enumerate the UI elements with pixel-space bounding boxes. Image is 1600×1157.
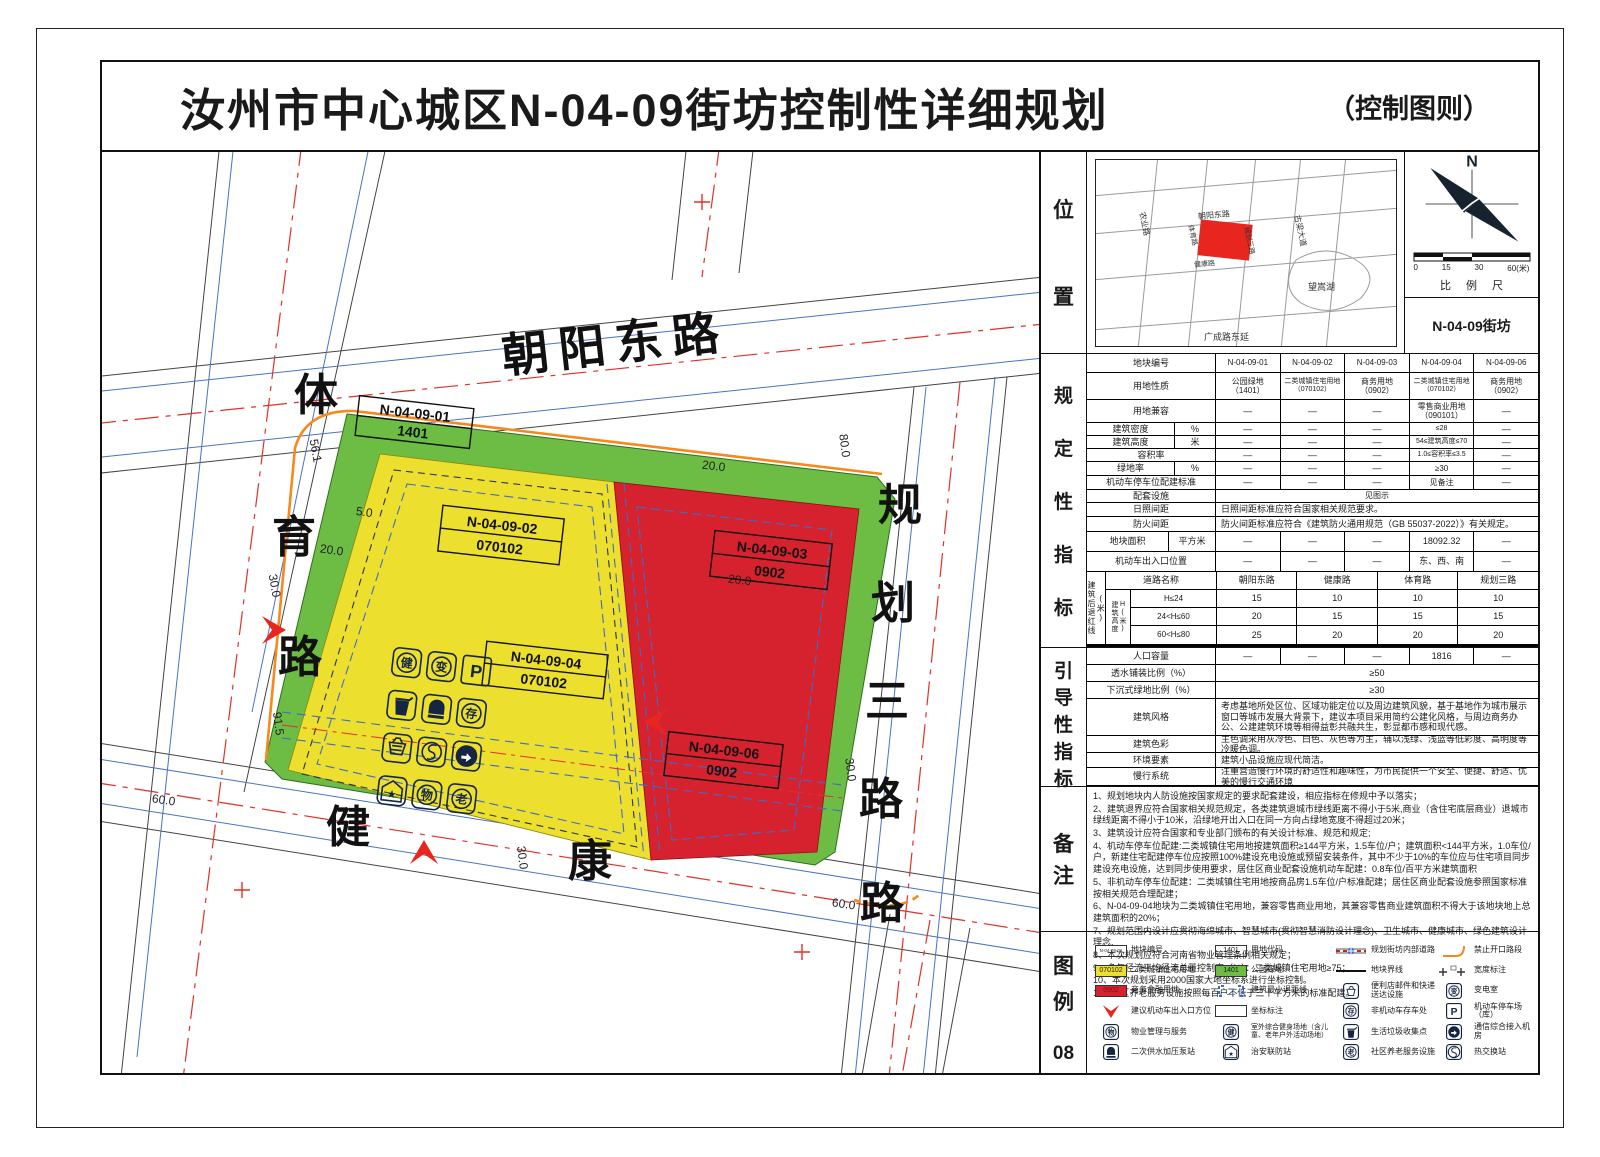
setback-height-label: 建筑高度H(米): [1106, 590, 1130, 644]
green-cell: —: [1216, 462, 1280, 475]
road-label-guihua-1: 规: [878, 481, 922, 530]
svg-text:老: 老: [455, 791, 469, 807]
legend-item-park: 1401 公园绿地: [1215, 962, 1333, 979]
row-label: 机动车停车位配建标准: [1087, 476, 1215, 489]
dim-label: 30.0: [842, 757, 859, 782]
note-item: 5、非机动车停车位配建：二类城镇住宅用地按商品房1.5车位/户标准配建；居住区商…: [1093, 877, 1532, 900]
note-item: 3、建筑设计应符合国家和专业部门颁布的有关设计标准、规范和规定;: [1093, 828, 1532, 840]
title-bar: 汝州市中心城区N-04-09街坊控制性详细规划 （控制图则）: [102, 62, 1538, 152]
green-cell: ≥30: [1410, 462, 1474, 475]
scale-label: 比 例 尺: [1440, 277, 1509, 293]
setback-road-header: 道路名称: [1106, 572, 1216, 589]
dim-label: 91.5: [270, 711, 287, 736]
plot-no-cell: N-04-09-02: [1281, 354, 1345, 372]
row-label: 用地性质: [1087, 373, 1215, 399]
population-cell: —: [1474, 648, 1538, 664]
row-label: 容积率: [1087, 449, 1215, 461]
green-cell: —: [1345, 462, 1409, 475]
parking-cell: 见备注: [1410, 476, 1474, 489]
plot-no-cell: N-04-09-01: [1216, 354, 1280, 372]
road-label-tiyu-2: 育: [272, 513, 316, 562]
section-notes-label: 备 注: [1041, 787, 1087, 931]
population-cell: —: [1216, 648, 1280, 664]
legend-item-land-code: 1401 用地代码: [1215, 942, 1333, 959]
land-use-cell: 公园绿地 （1401）: [1216, 373, 1280, 399]
dim-label: 80.0: [836, 433, 853, 458]
dim-label: 20.0: [701, 458, 726, 475]
section-legend: 图 例 08 N-04-09-01 地块编号 1401 用地代码: [1041, 932, 1538, 1073]
land-use-cell: 二类城镇住宅用地 （070102）: [1410, 373, 1474, 399]
area-cell: —: [1216, 532, 1280, 551]
plot-no-cell: N-04-09-03: [1345, 354, 1409, 372]
convenience-icon: [1335, 983, 1367, 999]
setback-road: 体育路: [1378, 572, 1458, 589]
svg-text:★: ★: [1228, 1051, 1234, 1058]
population-cell: —: [1345, 648, 1409, 664]
svg-text:N: N: [1466, 153, 1478, 170]
svg-text:变: 变: [1451, 986, 1458, 995]
setback-outer-label: 建筑后退红线(米): [1087, 572, 1105, 644]
no-open-icon: [1438, 943, 1470, 959]
setback-value: 20: [1378, 626, 1458, 644]
row-label: 环境要素: [1087, 753, 1215, 767]
far-cell: 1.0≤容积率≤3.5: [1410, 449, 1474, 461]
parking-cell: —: [1345, 476, 1409, 489]
row-label: 透水铺装比例（%）: [1087, 665, 1215, 681]
height-cell: —: [1216, 436, 1280, 448]
svg-text:二: 二: [1226, 987, 1235, 997]
parking-cell: —: [1474, 476, 1538, 489]
road-label-jiankang-2: 康: [568, 837, 612, 886]
internal-road-icon: [1335, 946, 1367, 956]
far-cell: —: [1345, 449, 1409, 461]
svg-text:变: 变: [435, 659, 449, 675]
page-title: 汝州市中心城区N-04-09街坊控制性详细规划: [180, 74, 1109, 139]
legend-item-coord: 坐标标注: [1215, 1003, 1333, 1021]
slow-cell: 注重营造慢行环境的舒适性和趣味性，为市民提供一个安全、便捷、舒适、优美的慢行交通…: [1216, 768, 1538, 785]
dim-label: 56.1: [307, 438, 325, 464]
svg-text:物: 物: [1108, 1028, 1115, 1037]
compat-cell: —: [1216, 400, 1280, 422]
transformer-icon: 变: [1438, 983, 1470, 999]
height-cell: —: [1281, 436, 1345, 448]
land-use-cell: 二类城镇住宅用地 （070102）: [1281, 373, 1345, 399]
width-mark-icon: [1438, 964, 1470, 978]
park-swatch: 1401: [1215, 965, 1247, 977]
block-name: N-04-09街坊: [1405, 297, 1538, 353]
entrance-arrow-south: [410, 840, 438, 864]
setback-value: 25: [1217, 626, 1296, 644]
plan-sheet: 汝州市中心城区N-04-09街坊控制性详细规划 （控制图则）: [100, 60, 1540, 1075]
plot-no-cell: N-04-09-04: [1410, 354, 1474, 372]
scale-ticks: 0 15 30 60(米): [1414, 263, 1530, 274]
setback-road: 朝阳东路: [1217, 572, 1296, 589]
section-notes: 备 注 1、规划地块内人防设施按国家规定的要求配套建设，相应指标在修规中予以落实…: [1041, 787, 1538, 932]
green-cell: —: [1281, 462, 1345, 475]
legend-item-business: 0902 商务金融用地: [1095, 982, 1213, 1000]
minimap-label-guliang: 古梁大道: [1292, 213, 1308, 246]
legend-item-security: ★ 治安联防站: [1215, 1044, 1333, 1061]
road-label-tiyu-1: 体: [294, 371, 338, 420]
row-label: 防火间距: [1087, 517, 1215, 531]
environment-cell: 建筑小品设施应现代简洁。: [1216, 753, 1538, 767]
road-label-guihua-4: 路: [859, 775, 904, 824]
minimap-label-nongye: 农业路: [1137, 211, 1152, 237]
setback-line-icon: 二: [1215, 984, 1247, 998]
land-code-swatch: 1401: [1215, 945, 1247, 957]
land-use-cell: 商务用地 （0902）: [1345, 373, 1409, 399]
plan-map-canvas: 朝阳东路 体 育 路 健 康 路 规 划 三 路 80.0 20.0 20.0: [102, 152, 1041, 1073]
scale-bar: [1413, 252, 1531, 262]
heat-exchange-icon: [1438, 1044, 1470, 1060]
plot-no-swatch: N-04-09-01: [1095, 945, 1127, 957]
row-label: 绿地率%: [1087, 462, 1215, 475]
far-cell: —: [1474, 449, 1538, 461]
legend-item-residential: 070102 二类城镇住宅用地: [1095, 962, 1213, 979]
road-label-guihua-3: 三: [865, 677, 909, 726]
dim-label: 60.0: [831, 895, 856, 912]
section-regulatory: 规 定 性 指 标 地块编号 N-04-09-01 N-04-09-02 N-0…: [1041, 354, 1538, 648]
setback-value: 15: [1378, 608, 1458, 625]
business-swatch: 0902: [1095, 985, 1127, 997]
section-location: 位 置 农业路: [1041, 152, 1538, 354]
note-item: 1、规划地块内人防设施按国家规定的要求配套建设，相应指标在修规中予以落实；: [1093, 791, 1532, 803]
compat-cell: 零售商业用地 （090101）: [1410, 400, 1474, 422]
svg-text:★: ★: [386, 788, 397, 801]
area-cell: —: [1281, 532, 1345, 551]
setback-value: 20: [1217, 608, 1296, 625]
minimap-site: [1197, 219, 1252, 260]
minimap-label-lake: 望嵩湖: [1308, 281, 1335, 292]
legend-item-bike: 存 非机动车存车处: [1335, 1003, 1436, 1021]
minimap-canvas: 农业路 朝阳东路 体育路 健康路 规划三路 古梁大道 望嵩湖 广成路东延: [1095, 159, 1397, 347]
section-legend-label: 图 例 08: [1041, 932, 1087, 1073]
svg-text:健: 健: [1228, 1028, 1235, 1037]
height-cell: 54≤建筑高度≤70: [1410, 436, 1474, 448]
residential-swatch: 070102: [1095, 965, 1127, 977]
row-label: 地块面积平方米: [1087, 532, 1215, 551]
legend-item-transformer: 变 变电室: [1438, 982, 1534, 1000]
style-cell: 考虑基地所处区位、区域功能定位以及周边建筑风貌，基于基地作为城市展示窗口等城市发…: [1216, 699, 1538, 735]
parking-cell: —: [1281, 476, 1345, 489]
height-cell: —: [1345, 436, 1409, 448]
entrance-cell: —: [1474, 552, 1538, 571]
parking-icon: P: [1438, 1003, 1470, 1019]
parking-cell: —: [1216, 476, 1280, 489]
setback-value: 20: [1458, 626, 1538, 644]
note-item: 2、建筑退界应符合国家相关规范规定，各类建筑退城市绿线距离不得小于5米,商业（含…: [1093, 804, 1532, 827]
legend-item-internal-road: 规划街坊内部道路: [1335, 942, 1436, 959]
legend-item-plot-no: N-04-09-01 地块编号: [1095, 942, 1213, 959]
entrance-cell: —: [1216, 552, 1280, 571]
setback-value: 10: [1458, 590, 1538, 607]
legend-grid: N-04-09-01 地块编号 1401 用地代码 规划街坊内部道路: [1087, 932, 1538, 1067]
garbage-icon: [1335, 1024, 1367, 1040]
section-guidance: 引 导 性 指 标 人口容量 — — — 1816 — 透水铺装比例（%）: [1041, 648, 1538, 787]
setback-value: 15: [1217, 590, 1296, 607]
road-label-guihua-2: 划: [871, 579, 915, 628]
bike-parking-icon: 存: [1335, 1003, 1367, 1019]
row-label: 人口容量: [1087, 648, 1215, 664]
density-cell: ≤28: [1410, 423, 1474, 435]
setback-range: 60<H≤80: [1131, 626, 1216, 644]
area-cell: —: [1474, 532, 1538, 551]
road-label-chaoyang: 朝阳东路: [499, 305, 731, 383]
svg-text:老: 老: [1347, 1048, 1355, 1057]
minimap-label-guangcheng: 广成路东延: [1204, 331, 1249, 342]
legend-item-garbage: 生活垃圾收集点: [1335, 1023, 1436, 1041]
location-minimap: 农业路 朝阳东路 体育路 健康路 规划三路 古梁大道 望嵩湖 广成路东延: [1087, 152, 1405, 353]
row-label: 建筑密度%: [1087, 423, 1215, 435]
population-cell: —: [1281, 648, 1345, 664]
entrance-cell: —: [1281, 552, 1345, 571]
compat-cell: —: [1281, 400, 1345, 422]
row-label: 配套设施: [1087, 490, 1215, 502]
facilities-cell: 见图示: [1216, 490, 1538, 502]
legend-item-boundary: 地块界线: [1335, 962, 1436, 979]
row-label: 用地兼容: [1087, 400, 1215, 422]
legend-item-convenience: 便利店邮件和快递送达设施: [1335, 982, 1436, 1000]
setback-range: H≤24: [1131, 590, 1216, 607]
setback-table: 建筑后退红线(米) 道路名称 朝阳东路 健康路 体育路 规划三路 建筑高度H(米…: [1087, 572, 1538, 644]
setback-road: 健康路: [1297, 572, 1377, 589]
row-label: 日照间距: [1087, 503, 1215, 516]
sunken-cell: ≥30: [1216, 682, 1538, 698]
legend-item-fitness: 健 室外综合健身场地（含儿童、老年户外活动场地）: [1215, 1023, 1333, 1041]
road-label-jiankang-1: 健: [326, 803, 370, 852]
row-label: 下沉式绿地比例（%）: [1087, 682, 1215, 698]
area-cell: —: [1345, 532, 1409, 551]
legend-item-elderly: 老 社区养老服务设施: [1335, 1044, 1436, 1061]
legend-item-telecom: 通信综合接入机房: [1438, 1023, 1534, 1041]
note-item: 6、N-04-09-04地块为二类城镇住宅用地，兼容零售商业用地，其兼容零售商业…: [1093, 901, 1532, 924]
minimap-label-tiyu: 体育路: [1186, 224, 1199, 246]
plot-no-cell: N-04-09-06: [1474, 354, 1538, 372]
density-cell: —: [1474, 423, 1538, 435]
elderly-icon: 老: [1335, 1044, 1367, 1060]
note-item: 4、机动车停车位配建:二类城镇住宅用地按建筑面积≥144平方米，1.5车位/户；…: [1093, 841, 1532, 876]
boundary-icon: [1335, 968, 1367, 974]
setback-value: 20: [1297, 626, 1377, 644]
legend-item-no-open: 禁止开口路段: [1438, 942, 1534, 959]
security-icon: ★: [1215, 1044, 1247, 1060]
property-icon: 物: [1095, 1024, 1127, 1040]
sunlight-cell: 日照间距标准应符合国家相关规范要求。: [1216, 503, 1538, 516]
coord-box-icon: [1215, 1005, 1247, 1017]
setback-value: 10: [1297, 590, 1377, 607]
density-cell: —: [1345, 423, 1409, 435]
page-subtitle: （控制图则）: [1328, 87, 1490, 126]
legend-item-setback-line: 二 建筑最小退距线: [1215, 982, 1333, 1000]
setback-value: 10: [1378, 590, 1458, 607]
dim-label: 5.0: [355, 504, 374, 520]
density-cell: —: [1281, 423, 1345, 435]
dim-label: 30.0: [266, 573, 284, 599]
svg-text:存: 存: [1348, 1007, 1355, 1016]
road-label-jiankang-3: 路: [860, 879, 905, 928]
population-cell: 1816: [1410, 648, 1474, 664]
row-label: 建筑色彩: [1087, 736, 1215, 752]
legend-item-water: 二次供水加压泵站: [1095, 1044, 1213, 1061]
legend-item-heat: 热交换站: [1438, 1044, 1534, 1061]
water-pump-icon: [1095, 1044, 1127, 1060]
row-label: 机动车出入口位置: [1087, 552, 1215, 571]
row-label: 地块编号: [1087, 354, 1215, 372]
setback-value: 15: [1297, 608, 1377, 625]
svg-text:P: P: [469, 661, 483, 682]
area-cell: 18092.32: [1410, 532, 1474, 551]
height-cell: —: [1474, 436, 1538, 448]
road-label-tiyu-3: 路: [278, 633, 323, 682]
entrance-cell: —: [1345, 552, 1409, 571]
compat-cell: —: [1474, 400, 1538, 422]
plan-map: 朝阳东路 体 育 路 健 康 路 规 划 三 路 80.0 20.0 20.0: [102, 152, 1041, 1073]
fire-cell: 防火间距标准应符合《建筑防火通用规范（GB 55037-2022）》有关规定。: [1216, 517, 1538, 531]
page-number: 08: [1053, 1043, 1074, 1065]
compat-cell: —: [1345, 400, 1409, 422]
parcel-red-business: [614, 482, 859, 860]
entrance-arrow-icon: [1095, 1004, 1127, 1018]
section-location-label: 位 置: [1041, 152, 1087, 353]
green-cell: —: [1474, 462, 1538, 475]
permeable-cell: ≥50: [1216, 665, 1538, 681]
color-cell: 主色调采用灰冷色、白色、灰色等为主，辅以浅绿、浅蓝等低彩度、高明度等冷暖色调。: [1216, 736, 1538, 752]
row-label: 建筑风格: [1087, 699, 1215, 735]
svg-text:存: 存: [464, 705, 479, 721]
fitness-icon: 健: [1215, 1024, 1247, 1040]
svg-text:物: 物: [420, 787, 434, 803]
section-guidance-label: 引 导 性 指 标: [1041, 648, 1087, 786]
setback-range: 24<H≤60: [1131, 608, 1216, 625]
entrance-cell: 东、西、南: [1410, 552, 1474, 571]
dim-label: 60.0: [151, 791, 176, 808]
legend-item-property: 物 物业管理与服务: [1095, 1023, 1213, 1041]
density-cell: —: [1216, 423, 1280, 435]
legend-item-entrance: 建议机动车出入口方位: [1095, 1003, 1213, 1021]
info-panel: 位 置 农业路: [1041, 152, 1538, 1073]
setback-value: 15: [1458, 608, 1538, 625]
section-regulatory-label: 规 定 性 指 标: [1041, 354, 1087, 647]
compass-icon: N: [1416, 152, 1528, 252]
far-cell: —: [1216, 449, 1280, 461]
row-label: 慢行系统: [1087, 768, 1215, 785]
row-label: 建筑高度米: [1087, 436, 1215, 448]
legend-item-parking: P 机动车停车场（库）: [1438, 1003, 1534, 1021]
far-cell: —: [1281, 449, 1345, 461]
land-use-cell: 商务用地 （0902）: [1474, 373, 1538, 399]
dim-label: 30.0: [514, 845, 531, 870]
setback-road: 规划三路: [1458, 572, 1538, 589]
telecom-icon: [1438, 1024, 1470, 1040]
svg-text:P: P: [1451, 1007, 1458, 1018]
legend-item-width: 宽度标注: [1438, 962, 1534, 979]
